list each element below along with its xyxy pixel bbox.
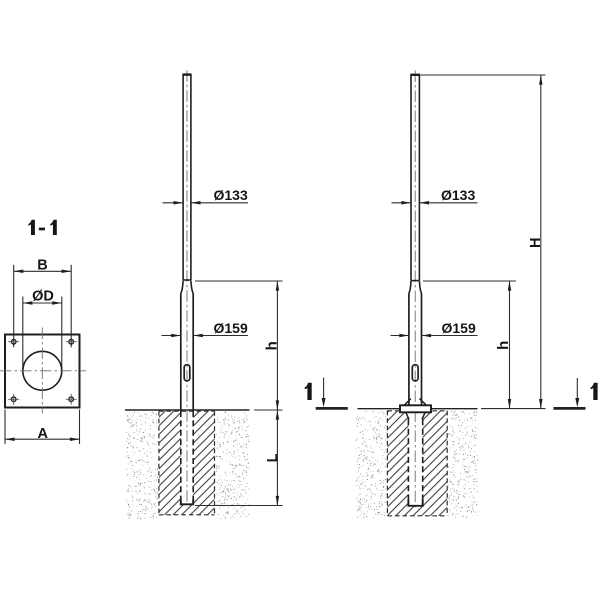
svg-text:Ø159: Ø159 [442, 320, 476, 336]
svg-text:h: h [495, 341, 512, 350]
svg-text:Ø133: Ø133 [214, 187, 248, 203]
svg-text:ØD: ØD [32, 289, 54, 305]
svg-text:Ø133: Ø133 [441, 187, 475, 203]
svg-text:H: H [528, 237, 544, 247]
svg-text:B: B [37, 257, 47, 273]
svg-text:Ø159: Ø159 [214, 320, 248, 336]
svg-text:A: A [38, 426, 49, 442]
svg-text:L: L [265, 453, 281, 462]
svg-text:h: h [263, 341, 280, 350]
